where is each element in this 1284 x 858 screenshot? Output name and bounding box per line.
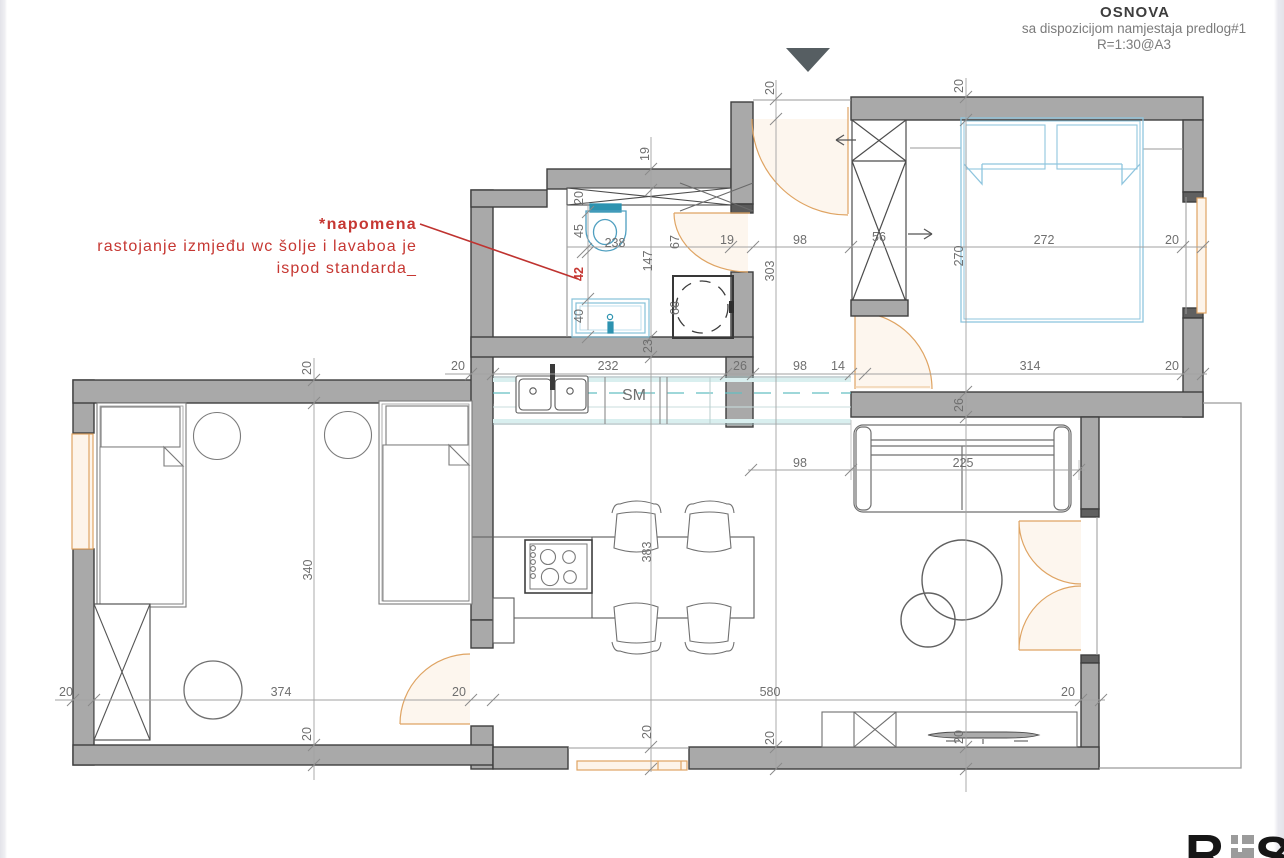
svg-text:270: 270 bbox=[952, 246, 966, 267]
svg-text:19: 19 bbox=[720, 233, 734, 247]
svg-text:ispod standarda_: ispod standarda_ bbox=[277, 260, 417, 277]
svg-text:238: 238 bbox=[605, 236, 626, 250]
svg-text:303: 303 bbox=[763, 261, 777, 282]
svg-text:20: 20 bbox=[1165, 359, 1179, 373]
svg-text:340: 340 bbox=[301, 560, 315, 581]
svg-text:66: 66 bbox=[668, 301, 682, 315]
svg-text:14: 14 bbox=[831, 359, 845, 373]
svg-text:98: 98 bbox=[793, 359, 807, 373]
svg-text:580: 580 bbox=[760, 685, 781, 699]
svg-text:20: 20 bbox=[59, 685, 73, 699]
svg-text:20: 20 bbox=[451, 359, 465, 373]
svg-text:383: 383 bbox=[640, 542, 654, 563]
svg-text:20: 20 bbox=[300, 727, 314, 741]
svg-text:23: 23 bbox=[641, 339, 655, 353]
svg-text:56: 56 bbox=[872, 230, 886, 244]
svg-text:20: 20 bbox=[452, 685, 466, 699]
svg-text:98: 98 bbox=[793, 233, 807, 247]
svg-text:sa dispozicijom namjestaja pre: sa dispozicijom namjestaja predlog#1 bbox=[1022, 21, 1246, 36]
svg-text:R: R bbox=[1185, 824, 1224, 858]
svg-text:OSNOVA: OSNOVA bbox=[1100, 4, 1170, 21]
svg-text:42: 42 bbox=[572, 267, 586, 281]
svg-text:232: 232 bbox=[598, 359, 619, 373]
svg-text:20: 20 bbox=[572, 191, 586, 205]
svg-text:20: 20 bbox=[1165, 233, 1179, 247]
svg-text:20: 20 bbox=[763, 81, 777, 95]
svg-text:R=1:30@A3: R=1:30@A3 bbox=[1097, 37, 1171, 52]
svg-text:SM: SM bbox=[622, 387, 646, 404]
svg-text:*napomena: *napomena bbox=[319, 216, 417, 233]
svg-text:98: 98 bbox=[793, 456, 807, 470]
svg-text:40: 40 bbox=[572, 309, 586, 323]
svg-text:225: 225 bbox=[953, 456, 974, 470]
svg-text:19: 19 bbox=[638, 147, 652, 161]
svg-text:20: 20 bbox=[640, 725, 654, 739]
svg-text:20: 20 bbox=[952, 730, 966, 744]
svg-text:147: 147 bbox=[641, 251, 655, 272]
svg-text:20: 20 bbox=[952, 79, 966, 93]
svg-text:26: 26 bbox=[952, 398, 966, 412]
svg-text:20: 20 bbox=[1061, 685, 1075, 699]
svg-text:67: 67 bbox=[668, 235, 682, 249]
svg-text:26: 26 bbox=[733, 359, 747, 373]
svg-text:20: 20 bbox=[763, 731, 777, 745]
svg-text:314: 314 bbox=[1020, 359, 1041, 373]
svg-text:45: 45 bbox=[572, 224, 586, 238]
svg-text:20: 20 bbox=[300, 361, 314, 375]
svg-text:272: 272 bbox=[1034, 233, 1055, 247]
svg-text:rastojanje izmjeđu wc šolje i: rastojanje izmjeđu wc šolje i lavaboa je bbox=[97, 238, 417, 255]
svg-text:374: 374 bbox=[271, 685, 292, 699]
